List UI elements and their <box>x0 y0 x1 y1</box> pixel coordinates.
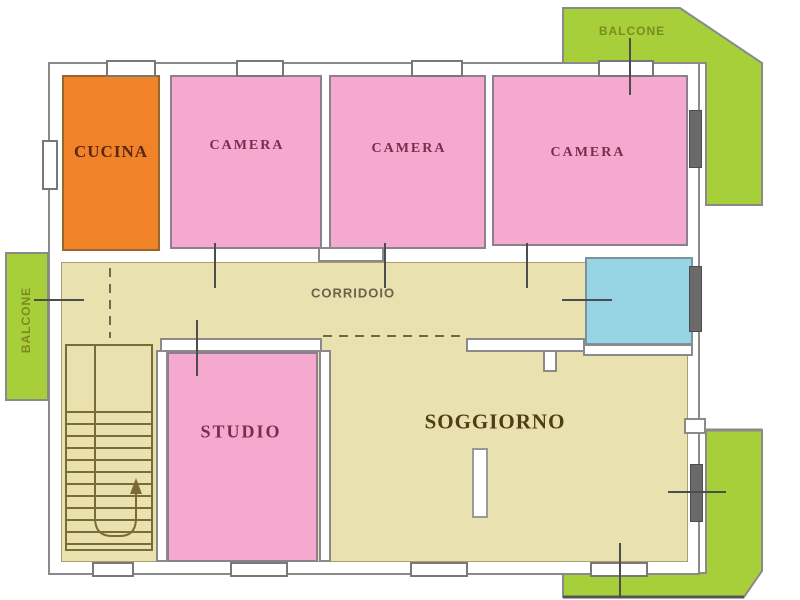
label-balcony-top: BALCONE <box>599 24 665 38</box>
details-layer <box>0 0 800 600</box>
label-bedroom-1: CAMERA <box>210 138 285 154</box>
label-bedroom-2: CAMERA <box>372 141 447 157</box>
label-study: STUDIO <box>200 422 281 443</box>
label-corridor: CORRIDOIO <box>311 286 395 301</box>
label-living-room: SOGGIORNO <box>425 410 566 435</box>
staircase <box>66 345 152 550</box>
floor-plan: CUCINA CAMERA CAMERA CAMERA STUDIO SOGGI… <box>0 0 800 600</box>
stairs-up-arrow-icon <box>130 478 142 494</box>
label-bedroom-3: CAMERA <box>551 145 626 161</box>
label-balcony-left: BALCONE <box>19 287 33 353</box>
label-kitchen: CUCINA <box>74 142 148 162</box>
door-swing-markers <box>34 38 726 598</box>
open-boundaries-dashed <box>110 268 466 338</box>
